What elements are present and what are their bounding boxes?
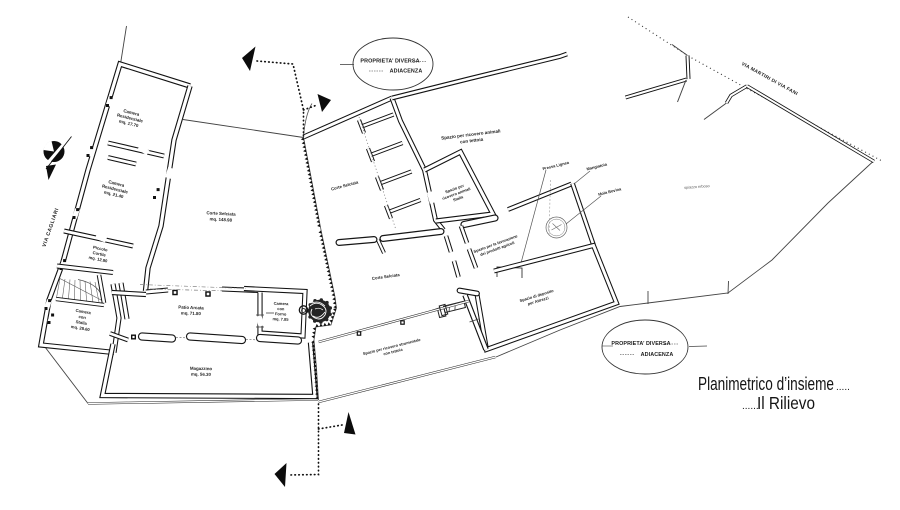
svg-text:Il Rilievo: Il Rilievo [757,393,815,413]
svg-text:ADIACENZA: ADIACENZA [390,69,423,75]
svg-text:Patio Arcatamq. 71.80: Patio Arcatamq. 71.80 [178,305,204,317]
svg-text:Planimetrico d’insieme: Planimetrico d’insieme [698,373,834,394]
svg-text:Corte Selciatamq. 148.98: Corte Selciatamq. 148.98 [206,210,236,223]
svg-text:.....: ..... [836,382,850,393]
svg-text:PROPRIETA’ DIVERSA: PROPRIETA’ DIVERSA [360,59,419,65]
svg-text:PROPRIETA’ DIVERSA: PROPRIETA’ DIVERSA [611,341,670,347]
svg-text:Magazzinomq. 56.30: Magazzinomq. 56.30 [190,366,213,377]
svg-text:ADIACENZA: ADIACENZA [641,352,674,358]
